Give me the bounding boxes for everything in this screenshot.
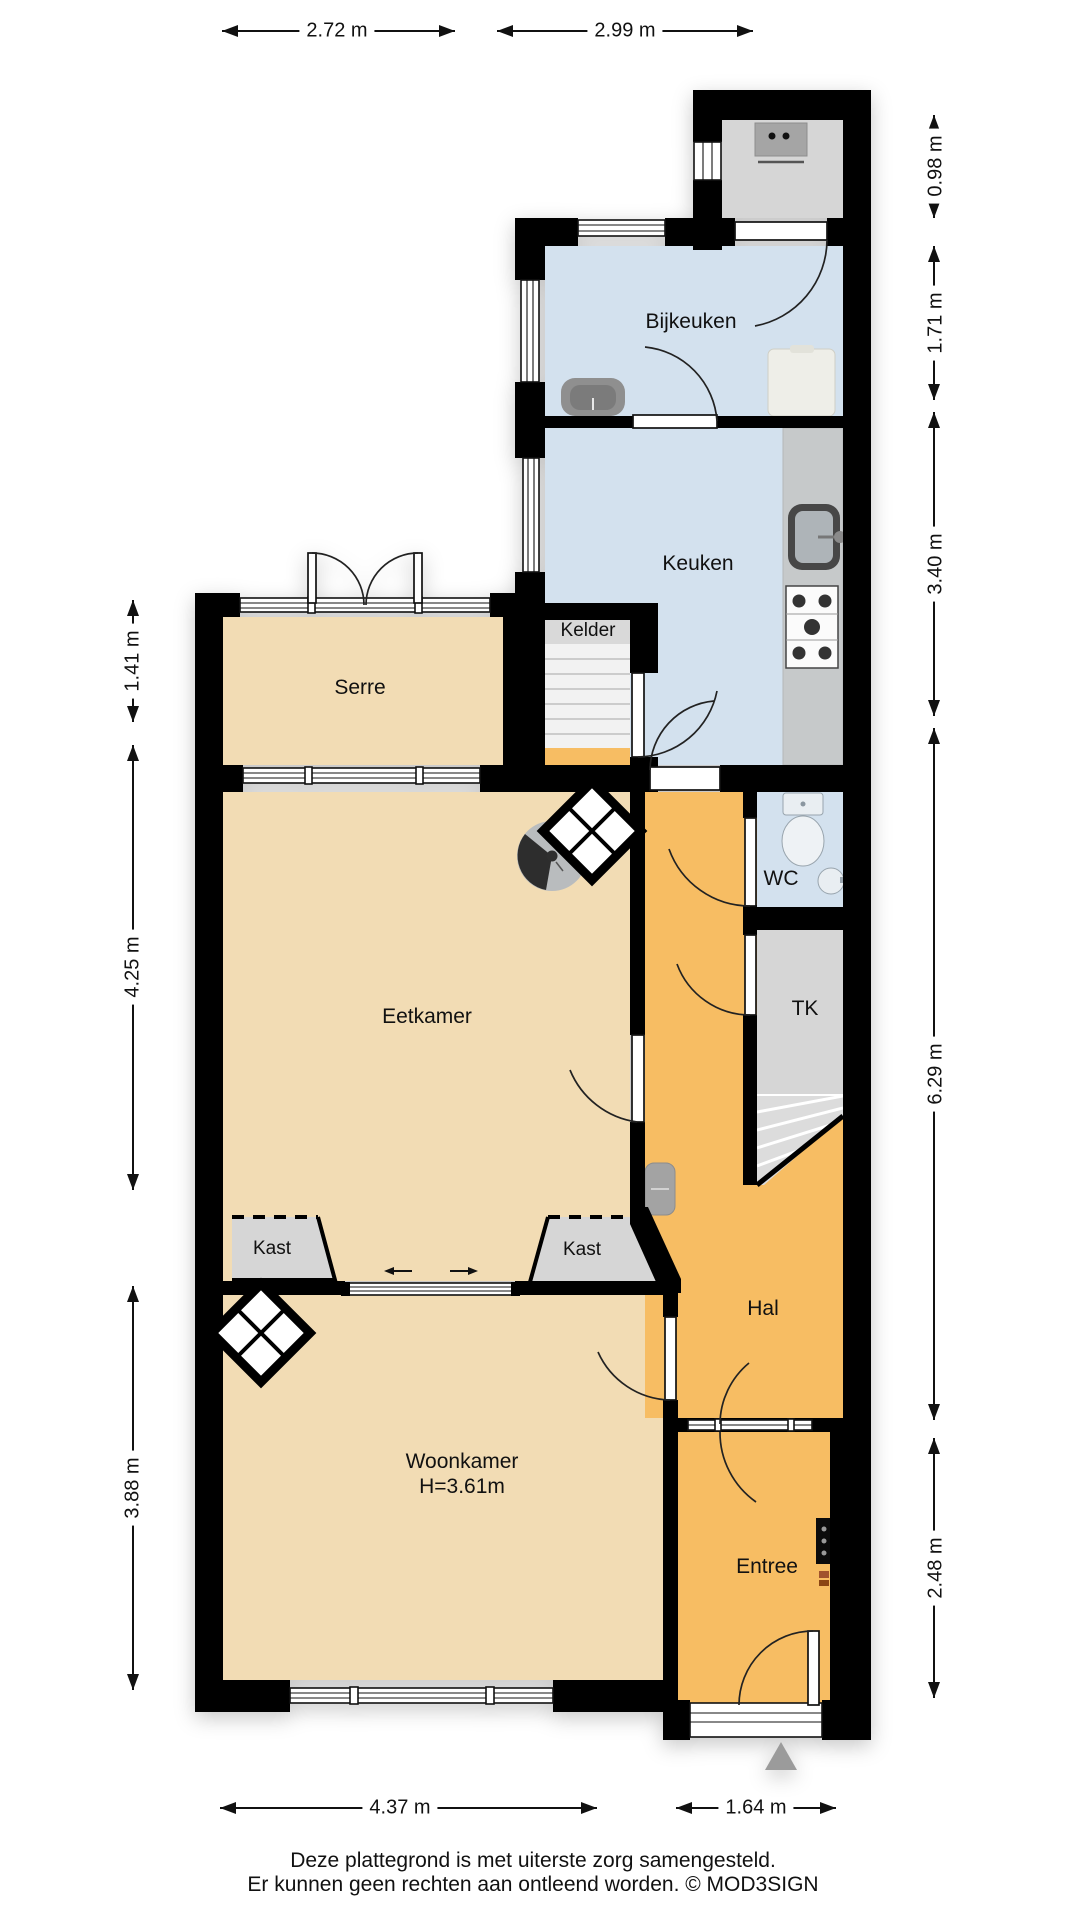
hal-entree-door-glazing (688, 1419, 812, 1431)
floorplan-page: Bijkeuken Keuken Kelder Serre Eetkamer W… (0, 0, 1080, 1920)
keuken-left-window (523, 458, 539, 572)
room-label-serre: Serre (334, 676, 385, 700)
room-label-eetkamer: Eetkamer (382, 1005, 472, 1029)
room-label-bijkeuken: Bijkeuken (645, 310, 736, 334)
room-label-tk: TK (792, 997, 819, 1021)
room-label-kelder: Kelder (561, 620, 616, 642)
dim-top-left: 2.72 m (299, 20, 374, 43)
gas-hob-icon (786, 586, 838, 668)
toilet-icon (782, 793, 824, 866)
room-label-wc: WC (764, 867, 799, 891)
room-label-entree: Entree (736, 1555, 798, 1579)
bijkeuken-left-window (521, 280, 539, 382)
room-label-hal: Hal (747, 1297, 779, 1321)
room-label-woonkamer: Woonkamer (406, 1450, 519, 1474)
dim-right-1: 0.98 m (925, 128, 948, 203)
dim-bottom-left: 4.37 m (362, 1797, 437, 1820)
dim-right-5: 2.48 m (925, 1530, 948, 1605)
room-label-keuken: Keuken (662, 552, 733, 576)
room-label-kast-left: Kast (253, 1238, 291, 1260)
bijkeuken-appliance-icon (768, 345, 835, 416)
dim-right-4: 6.29 m (925, 1036, 948, 1111)
floorplan-drawing (0, 0, 1080, 1920)
disclaimer-line-1: Deze plattegrond is met uiterste zorg sa… (290, 1849, 776, 1873)
building (195, 90, 871, 1770)
dim-left-2: 4.25 m (122, 929, 145, 1004)
room-label-ceiling-height: H=3.61m (419, 1475, 505, 1499)
dim-right-2: 1.71 m (925, 285, 948, 360)
dim-left-1: 1.41 m (122, 623, 145, 698)
dim-right-3: 3.40 m (925, 526, 948, 601)
disclaimer-line-2: Er kunnen geen rechten aan ontleend word… (247, 1873, 818, 1897)
kitchen-sink-icon (788, 504, 846, 570)
dim-top-right: 2.99 m (587, 20, 662, 43)
radiator-icon (645, 1163, 675, 1215)
serre-bottom-windows (243, 767, 480, 784)
bijkeuken-top-window (578, 220, 665, 236)
bijkeuken-sink-icon (561, 378, 625, 416)
serre-top-windows (240, 597, 490, 613)
dim-left-3: 3.88 m (122, 1450, 145, 1525)
front-door-sill (690, 1703, 822, 1737)
woonkamer-bottom-window (290, 1687, 553, 1704)
room-label-kast-right: Kast (563, 1239, 601, 1261)
storage-window (694, 142, 721, 180)
entrance-arrow-icon (765, 1742, 797, 1770)
dim-bottom-right: 1.64 m (718, 1797, 793, 1820)
boiler-icon (755, 123, 807, 162)
